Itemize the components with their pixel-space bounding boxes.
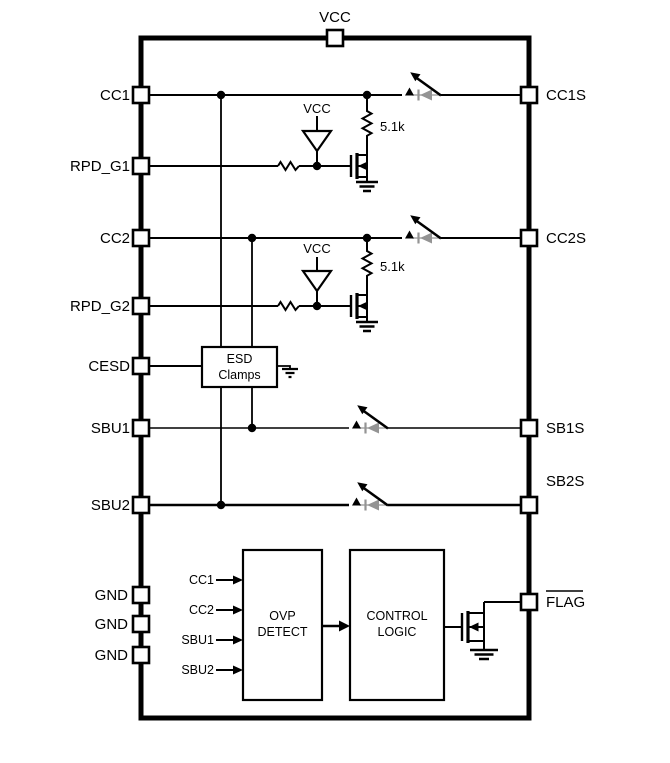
pin-cc1 bbox=[133, 87, 149, 103]
pin-label-sbu2: SBU2 bbox=[91, 497, 130, 514]
pin-sbu1 bbox=[133, 420, 149, 436]
schematic-canvas: VCC VCC 5.1k 5.1k ESD Clamps OVP DETECT … bbox=[0, 0, 670, 763]
resistor-icon bbox=[363, 238, 372, 295]
arrow-icon bbox=[233, 576, 243, 585]
pin-label-gnd-2: GND bbox=[95, 616, 129, 633]
pin-cc1s bbox=[521, 87, 537, 103]
flag-mosfet-icon bbox=[462, 602, 498, 659]
pin-sbu2 bbox=[133, 497, 149, 513]
pin-label-cesd: CESD bbox=[88, 358, 130, 375]
ovp-input-label: SBU1 bbox=[181, 633, 214, 647]
package-pins bbox=[133, 30, 537, 663]
pin-label-sbu1: SBU1 bbox=[91, 420, 130, 437]
resistor-icon bbox=[363, 95, 372, 155]
pin-rpd-g2 bbox=[133, 298, 149, 314]
esd-box-label-2: Clamps bbox=[218, 368, 260, 382]
pin-label-cc2: CC2 bbox=[100, 230, 130, 247]
pulldown-mosfet-icon bbox=[351, 293, 378, 331]
junction-dot bbox=[313, 162, 321, 170]
pin-label-sb2s: SB2S bbox=[546, 473, 584, 490]
junction-dot bbox=[248, 424, 256, 432]
analog-switch-icon bbox=[352, 405, 388, 433]
vcc-driver-icon bbox=[303, 271, 331, 291]
pin-cc2 bbox=[133, 230, 149, 246]
ovp-input-label: CC1 bbox=[189, 573, 214, 587]
pin-label-gnd-1: GND bbox=[95, 587, 129, 604]
ground-icon bbox=[470, 650, 498, 659]
arrow-icon bbox=[339, 621, 350, 632]
ovp-detect-box: OVP DETECT bbox=[243, 550, 322, 700]
ovp-box-label-1: OVP bbox=[269, 609, 295, 623]
junction-dots bbox=[217, 91, 371, 509]
resistor-icon bbox=[278, 162, 299, 170]
pin-sb2s bbox=[521, 497, 537, 513]
junction-dot bbox=[217, 91, 225, 99]
ground-icon bbox=[282, 369, 298, 377]
ovp-box-label-2: DETECT bbox=[258, 625, 308, 639]
wire-vertical-nets bbox=[221, 95, 252, 505]
vcc-rail-label: VCC bbox=[303, 101, 330, 116]
pin-label-vcc: VCC bbox=[319, 9, 351, 26]
junction-dot bbox=[313, 302, 321, 310]
esd-box-label-1: ESD bbox=[227, 352, 253, 366]
pin-label-rpd-g1: RPD_G1 bbox=[70, 158, 130, 175]
control-logic-box: CONTROL LOGIC bbox=[350, 550, 444, 700]
arrow-icon bbox=[233, 666, 243, 675]
pin-label-rpd-g2: RPD_G2 bbox=[70, 298, 130, 315]
ovp-inputs: CC1 CC2 SBU1 SBU2 bbox=[181, 573, 243, 677]
pin-label-sb1s: SB1S bbox=[546, 420, 584, 437]
pin-cc2s bbox=[521, 230, 537, 246]
analog-switch-icon bbox=[405, 72, 441, 100]
pin-label-cc1s: CC1S bbox=[546, 87, 586, 104]
resistor-icon bbox=[278, 302, 299, 310]
pin-gnd-1 bbox=[133, 587, 149, 603]
analog-switch-icon bbox=[352, 482, 388, 510]
pin-label-cc1: CC1 bbox=[100, 87, 130, 104]
pin-flag bbox=[521, 594, 537, 610]
junction-dot bbox=[363, 91, 371, 99]
analog-switch-icon bbox=[405, 215, 441, 243]
pin-cesd bbox=[133, 358, 149, 374]
pin-gnd-2 bbox=[133, 616, 149, 632]
junction-dot bbox=[217, 501, 225, 509]
pin-label-flag: FLAG bbox=[546, 594, 585, 611]
esd-clamps-box: ESD Clamps bbox=[202, 347, 298, 387]
ovp-input-label: SBU2 bbox=[181, 663, 214, 677]
control-box-label-2: LOGIC bbox=[378, 625, 417, 639]
vcc-rail-label: VCC bbox=[303, 241, 330, 256]
pin-rpd-g1 bbox=[133, 158, 149, 174]
control-box-label-1: CONTROL bbox=[366, 609, 427, 623]
resistor-value-label: 5.1k bbox=[380, 119, 405, 134]
arrow-icon bbox=[233, 606, 243, 615]
junction-dot bbox=[363, 234, 371, 242]
ovp-input-label: CC2 bbox=[189, 603, 214, 617]
resistor-value-label: 5.1k bbox=[380, 259, 405, 274]
pulldown-mosfet-icon bbox=[351, 153, 378, 191]
pin-label-cc2s: CC2S bbox=[546, 230, 586, 247]
pin-label-gnd-3: GND bbox=[95, 647, 129, 664]
pin-gnd-3 bbox=[133, 647, 149, 663]
vcc-driver-icon bbox=[303, 131, 331, 151]
block-diagram: VCC VCC 5.1k 5.1k ESD Clamps OVP DETECT … bbox=[0, 0, 670, 763]
pin-sb1s bbox=[521, 420, 537, 436]
pin-vcc bbox=[327, 30, 343, 46]
junction-dot bbox=[248, 234, 256, 242]
arrow-icon bbox=[233, 636, 243, 645]
